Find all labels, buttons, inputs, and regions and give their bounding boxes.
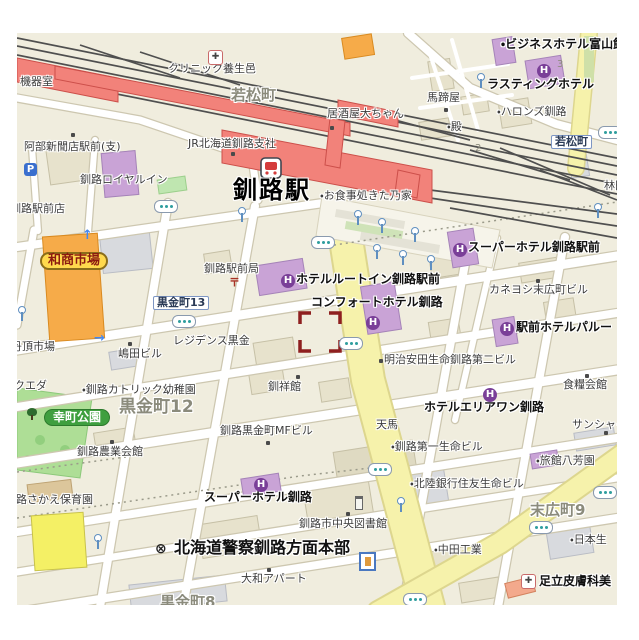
poi-dot-icon	[604, 431, 608, 435]
label-kushiro-ekimae-post-office: 釧路駅前局	[204, 263, 259, 275]
label-suehirocho-9: 末広町9	[530, 503, 585, 519]
label-comfort-hotel-kushiro: コンフォートホテル釧路	[311, 296, 443, 309]
label-super-hotel-kushiro: スーパーホテル釧路	[204, 491, 312, 504]
label-kuroganecho-12: 黒金町12	[119, 399, 194, 417]
busstop-icon	[154, 200, 178, 213]
hotel-icon: H	[366, 316, 380, 330]
poi-dot-icon	[128, 342, 132, 346]
label-wakamatsucho: 若松町	[231, 88, 276, 104]
label-hokkaido-police-kushiro-hq: 北海道警察釧路方面本部	[174, 540, 350, 557]
postoffice-icon: 〒	[229, 277, 240, 288]
hospital-icon: ✚	[521, 574, 536, 589]
label-kuroganecho-8: 黒金町8	[160, 595, 215, 605]
poi-dot-icon	[330, 126, 334, 130]
monument-icon	[355, 496, 363, 510]
label-hokuriku-bank-sumitomo-seimei-bldg: ・北陸銀行住友生命ビル	[410, 478, 524, 490]
label-ekimae-hotel-paroo: 駅前ホテルパルー	[516, 321, 612, 334]
poi-dot-icon	[110, 440, 114, 444]
pole-icon	[396, 497, 405, 512]
station-icon	[261, 158, 281, 178]
map-viewport[interactable]: 機器室クリニック養生邑若松町居酒屋大ちゃん馬蹄屋・殿・ビジネスホテル富山館ラステ…	[17, 33, 617, 605]
poi-dot-icon	[585, 374, 589, 378]
label-nihon-seimei: ・日本生	[570, 534, 607, 546]
label-nakata-kogyo: ・中田工業	[434, 544, 482, 556]
hotel-icon: H	[281, 274, 295, 288]
busstop-icon	[311, 236, 335, 249]
hotel-icon: H	[254, 478, 268, 492]
label-ryokan-happoen: ・旅館八芳園	[536, 455, 595, 467]
label-izakaya-daichan: 居酒屋大ちゃん	[327, 108, 404, 120]
label-saiwaicho-park: 幸町公園	[44, 409, 110, 426]
label-tancho-ichiba: 丹頂市場	[17, 341, 55, 353]
pole-icon	[93, 534, 102, 549]
poi-dot-icon	[266, 441, 270, 445]
poi-dot-icon	[379, 359, 383, 363]
busstop-icon	[403, 593, 427, 605]
orange-bldg-top	[342, 34, 375, 59]
label-super-hotel-kushiro-ekimae: スーパーホテル釧路駅前	[468, 241, 600, 254]
pole-icon	[237, 207, 246, 222]
label-kushiro-royal-inn: 釧路ロイヤルイン	[80, 174, 168, 186]
label-residence-kurogane: レジデンス黒金	[173, 335, 250, 347]
label-abe-shimbunten: 阿部新聞店駅前(支)	[24, 141, 121, 153]
busstop-icon	[339, 337, 363, 350]
label-kushiro-central-library: 釧路市中央図書館	[299, 518, 387, 530]
label-tenma: 天馬	[376, 419, 398, 431]
label-kushiro-station: 釧路駅	[233, 178, 311, 203]
label-hotel-area-one-kushiro: ホテルエリアワン釧路	[424, 401, 544, 414]
label-sakae-hoikuen: 路さかえ保育園	[17, 494, 93, 506]
label-yamato-apart: 大和アパート	[241, 573, 307, 585]
map-screenshot: 機器室クリニック養生邑若松町居酒屋大ちゃん馬蹄屋・殿・ビジネスホテル富山館ラステ…	[0, 0, 639, 640]
label-sunshine: サンシャイ	[572, 419, 617, 431]
pole-icon	[410, 227, 419, 242]
poi-dot-icon	[444, 108, 448, 112]
label-adachi-hifuka: 足立皮膚科美	[539, 575, 611, 588]
label-senshokan: 釧祥館	[268, 381, 301, 393]
label-kushiro-kuroganecho-mf-bldg: 釧路黒金町MFビル	[220, 425, 313, 437]
label-meiji-yasuda-seimei-2nd-bldg: 明治安田生命釧路第二ビル	[384, 354, 516, 366]
label-block-3: 3	[557, 60, 563, 71]
yellow-bldg	[31, 512, 87, 570]
pole-icon	[398, 250, 407, 265]
label-shokuryo-kaikan: 食糧会館	[563, 379, 607, 391]
pole-icon	[377, 218, 386, 233]
hotel-icon: H	[537, 64, 551, 78]
label-lasting-hotel: ラスティングホテル	[487, 78, 594, 91]
shrine-icon	[359, 552, 376, 571]
busstop-icon	[172, 315, 196, 328]
label-kueda: クエダ	[17, 380, 47, 392]
pole-icon	[17, 306, 26, 321]
label-kushiro-nogyo-kaikan: 釧路農業会館	[77, 446, 143, 458]
pole-icon	[476, 73, 485, 88]
label-jr-hokkaido-kushiro-branch: JR北海道釧路支社	[188, 138, 276, 150]
arrow-right-icon: →	[94, 331, 105, 346]
label-hotel-route-inn-kushiro-ekimae: ホテルルートイン釧路駅前	[296, 273, 440, 286]
busstop-kuroganecho-13: 黒金町13	[153, 296, 209, 310]
label-kaneyoshi-suehirocho-bldg: カネヨシ末広町ビル	[489, 284, 588, 296]
arrow-up-icon: ↑	[82, 228, 93, 243]
police-badge-icon: ⊗	[155, 542, 167, 556]
label-tono: ・殿	[447, 121, 462, 133]
busstop-icon	[598, 126, 617, 139]
parking-icon: P	[24, 163, 37, 176]
hotel-icon: H	[483, 388, 497, 402]
label-oshokujidokoro-kitanoya: ・お食事処きた乃家	[320, 190, 412, 202]
label-kushiro-daiichi-seimei-bldg: ・釧路第一生命ビル	[391, 441, 483, 453]
label-kushiro-catholic-kindergarten: ・釧路カトリック幼稚園	[82, 384, 196, 396]
map-canvas: 機器室クリニック養生邑若松町居酒屋大ちゃん馬蹄屋・殿・ビジネスホテル富山館ラステ…	[17, 33, 617, 605]
poi-dot-icon	[346, 512, 350, 516]
label-kushiro-ekimaeten: 釧路駅前店	[17, 203, 65, 215]
busstop-icon	[593, 486, 617, 499]
pole-icon	[426, 255, 435, 270]
poi-dot-icon	[231, 152, 235, 156]
label-bateiya: 馬蹄屋	[427, 92, 460, 104]
label-kikishitsu: 機器室	[20, 76, 53, 88]
hospital-icon: ✚	[208, 50, 223, 65]
poi-dot-icon	[71, 133, 75, 137]
washo-market-bldg	[42, 233, 104, 342]
pole-icon	[353, 210, 362, 225]
hotel-icon: H	[500, 322, 514, 336]
pole-icon	[372, 244, 381, 259]
pole-icon	[593, 203, 602, 218]
poi-dot-icon	[267, 568, 271, 572]
poi-dot-icon	[296, 375, 300, 379]
label-business-hotel-toyamakan: ・ビジネスホテル富山館	[501, 38, 617, 51]
label-hayashida: 林田	[604, 180, 617, 192]
busstop-icon	[529, 521, 553, 534]
label-block-2: 2	[475, 144, 481, 155]
label-shimada-bldg: 嶋田ビル	[118, 348, 162, 360]
busstop-icon	[368, 463, 392, 476]
busstop-wakamatsucho: 若松町	[551, 135, 592, 149]
label-hallons-kushiro: ・ハロンズ釧路	[497, 106, 567, 118]
label-washo-ichiba: 和商市場	[40, 252, 108, 270]
poi-dot-icon	[536, 279, 540, 283]
hotel-icon: H	[453, 243, 467, 257]
